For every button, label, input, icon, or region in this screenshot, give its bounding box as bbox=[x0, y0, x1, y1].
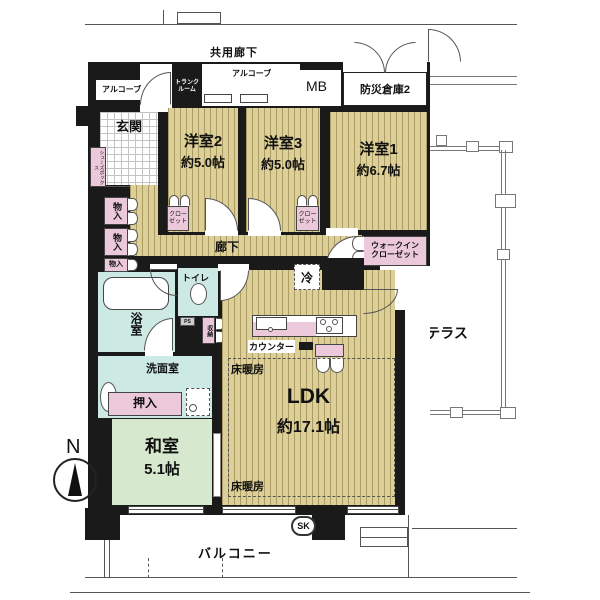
hall-storage-label: 収納 bbox=[205, 325, 212, 337]
bedroom3-size: 約5.0帖 bbox=[246, 154, 320, 173]
hall-storage: 収納 bbox=[202, 317, 215, 344]
closet-bifold-arc bbox=[169, 195, 179, 206]
slop-sink-label: SK bbox=[297, 521, 310, 531]
counter-label: カウンター bbox=[248, 340, 295, 353]
cabinet-bifold-arc bbox=[128, 243, 138, 256]
balcony-partition bbox=[222, 558, 223, 578]
alcove-left-label: アルコーブ bbox=[102, 84, 141, 95]
exterior-door-arc bbox=[428, 29, 461, 62]
japanese-room-size: 5.1帖 bbox=[112, 458, 212, 479]
shoe-box-label: シューズボックス bbox=[93, 148, 104, 186]
slop-sink: SK bbox=[291, 516, 316, 536]
window bbox=[222, 506, 296, 514]
balcony-label: バルコニー bbox=[198, 543, 273, 562]
ground-line bbox=[70, 592, 530, 593]
corridor-notch-box bbox=[177, 12, 221, 24]
toilet-label: トイレ bbox=[182, 271, 209, 284]
balcony-pillar-left bbox=[85, 508, 120, 540]
stove-burner bbox=[332, 319, 338, 325]
fence-post bbox=[500, 407, 516, 419]
terrace-rail-top-a bbox=[430, 76, 517, 77]
washing-machine-drain bbox=[189, 404, 197, 412]
corridor-floor bbox=[130, 235, 362, 256]
wall-stub-fridge bbox=[322, 258, 364, 290]
fence-post bbox=[466, 141, 479, 152]
cabinet-bifold-arc bbox=[128, 198, 138, 211]
fridge-label: 冷 bbox=[294, 264, 320, 290]
alcove-center-label: アルコーブ bbox=[232, 68, 271, 79]
fence-post bbox=[495, 194, 516, 208]
bedroom3-name: 洋室3 bbox=[246, 132, 320, 153]
balcony-pillar-right bbox=[312, 510, 345, 540]
fusuma-door-gap bbox=[213, 433, 221, 497]
kitchen-wall-box bbox=[299, 342, 313, 350]
storage-cabinet-2: 物入 bbox=[104, 228, 128, 256]
closet-label: ゼット bbox=[169, 219, 187, 226]
bedroom3-closet: クロー ゼット bbox=[296, 206, 319, 231]
sink-faucet bbox=[268, 327, 273, 332]
closet-label: クロー bbox=[298, 212, 316, 219]
window-line bbox=[128, 509, 204, 510]
north-label: N bbox=[66, 436, 80, 459]
window bbox=[128, 506, 204, 514]
floor-heating-label-top: 床暖房 bbox=[231, 361, 264, 377]
alcove-window-slit bbox=[240, 94, 268, 103]
closet-label: ゼット bbox=[298, 219, 316, 226]
toilet-bowl bbox=[190, 283, 207, 305]
cabinet-bifold-arc bbox=[128, 212, 138, 225]
corridor-label: 廊下 bbox=[215, 238, 239, 255]
trunk-room-label1: トランク bbox=[175, 80, 199, 87]
ldk-name: LDK bbox=[222, 385, 395, 409]
exterior-vline bbox=[408, 513, 409, 578]
japanese-room-name: 和室 bbox=[112, 432, 212, 457]
storage-cabinet-label: 物入 bbox=[111, 233, 121, 251]
stove-burner bbox=[326, 326, 332, 332]
wic-label2: クローゼット bbox=[371, 251, 419, 260]
balcony-left-edge bbox=[104, 540, 110, 578]
kitchen-storage bbox=[315, 344, 344, 357]
pipe-space: PS bbox=[180, 317, 195, 326]
shoe-box: シューズボックス bbox=[90, 147, 106, 187]
storage-cabinet-3: 物入 bbox=[104, 258, 128, 272]
washroom-label: 洗面室 bbox=[146, 360, 179, 376]
cabinet-bifold-arc bbox=[128, 229, 138, 242]
common-corridor-label: 共用廊下 bbox=[210, 44, 258, 60]
corridor-notch-line bbox=[163, 10, 164, 24]
closet-label: クロー bbox=[169, 212, 187, 219]
window-line bbox=[347, 509, 399, 510]
bedroom1-name: 洋室1 bbox=[330, 138, 427, 159]
balcony-edge-line bbox=[85, 577, 517, 578]
washing-machine-space bbox=[186, 388, 210, 416]
ldk-size: 約17.1帖 bbox=[222, 413, 395, 437]
trunk-room-label2: ルーム bbox=[178, 87, 196, 94]
bathroom-label: 浴室 bbox=[128, 312, 145, 336]
balcony-partition bbox=[148, 558, 149, 578]
north-arrow-icon bbox=[68, 463, 82, 496]
floor-heating-label-bottom: 床暖房 bbox=[231, 478, 264, 494]
window bbox=[347, 506, 399, 514]
bedroom2-size: 約5.0帖 bbox=[168, 152, 238, 171]
terrace-rail-top-b bbox=[430, 84, 517, 85]
fence-post bbox=[436, 135, 447, 146]
closet-bifold-arc bbox=[297, 195, 307, 206]
alcove-window-slit bbox=[204, 94, 232, 103]
floor-plan: 共用廊下 ルーフテラス トランク ルーム アルコーブ アルコーブ MB 防災倉庫… bbox=[0, 0, 600, 600]
bedroom2-name: 洋室2 bbox=[168, 130, 238, 151]
step-line bbox=[360, 537, 408, 538]
disaster-storage-label: 防災倉庫2 bbox=[360, 81, 410, 97]
ldk-east-wall bbox=[395, 310, 405, 515]
window-line bbox=[222, 509, 296, 510]
fence-post bbox=[450, 407, 463, 418]
terrace-fence-east bbox=[501, 150, 506, 412]
wic-door-arc bbox=[352, 236, 364, 251]
meter-box-label: MB bbox=[306, 78, 327, 94]
trunk-room: トランク ルーム bbox=[172, 68, 202, 106]
pipe-space-label: PS bbox=[184, 319, 191, 325]
entrance-label: 玄関 bbox=[116, 116, 142, 135]
left-wall-notch bbox=[76, 106, 89, 126]
disaster-storage: 防災倉庫2 bbox=[343, 72, 427, 106]
closet-bifold-arc bbox=[180, 195, 190, 206]
bedroom1-door-gap bbox=[326, 228, 358, 236]
bedroom1-size: 約6.7帖 bbox=[330, 160, 427, 179]
walk-in-closet: ウォークイン クローゼット bbox=[363, 236, 427, 266]
fence-post bbox=[497, 249, 510, 260]
oshiire-label: 押入 bbox=[133, 397, 157, 410]
closet-bifold-arc bbox=[308, 195, 318, 206]
corridor-outline bbox=[85, 24, 517, 25]
terrace-cutout bbox=[403, 266, 430, 515]
exterior-line bbox=[412, 528, 517, 529]
stove-burner bbox=[320, 319, 326, 325]
storage-cabinet-label: 物入 bbox=[111, 202, 121, 220]
cabinet-bifold-arc bbox=[128, 259, 138, 271]
storage-cabinet-label: 物入 bbox=[109, 261, 123, 269]
oshiire-closet: 押入 bbox=[108, 392, 182, 416]
bedroom2-closet: クロー ゼット bbox=[167, 206, 189, 231]
storage-cabinet-1: 物入 bbox=[104, 197, 128, 225]
